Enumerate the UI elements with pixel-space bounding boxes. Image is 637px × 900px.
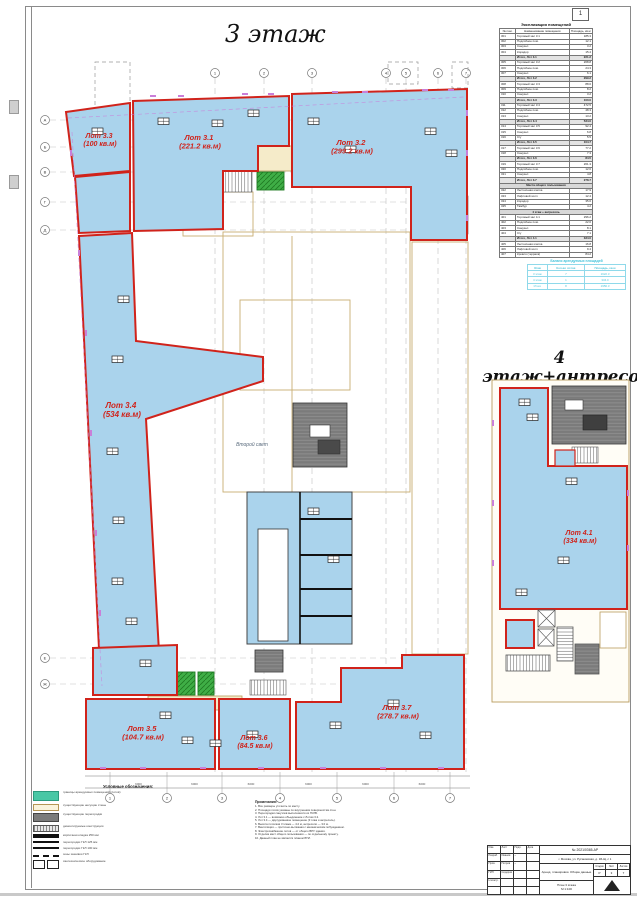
stage-label: Стадия <box>594 864 606 869</box>
lot-3-3-annex-region[interactable] <box>75 172 130 233</box>
title-block-grid-row: ГИПСидоров <box>488 871 539 879</box>
lot-4-1-annex-region[interactable] <box>506 620 534 648</box>
svg-text:6000: 6000 <box>419 782 426 786</box>
legend-swatch-bar1 <box>33 834 59 838</box>
explication-row: 407Кровля (терраса)84.2 <box>500 252 593 257</box>
legend-item: зоны зашивки ГКЛ <box>33 853 251 857</box>
title-block-grid-row <box>488 887 539 894</box>
legend-swatch-teal <box>33 791 59 801</box>
stage-value: Р <box>594 870 606 876</box>
legend-item-text: кирпичная кладка 250 мм <box>63 834 99 838</box>
area-balance-table: Баланс арендуемых площадей ЭтажКол-во ло… <box>527 259 626 290</box>
title-block-drawing-name: План 3 этажа М 1:100 <box>540 881 593 895</box>
lot-3-7-label: Лот 3.7 (278.7 кв.м) <box>377 703 419 721</box>
legend-item-text: зоны зашивки ГКЛ <box>63 853 89 857</box>
title-block-doc-title: Аренд. планировки. Общие данные <box>540 864 593 881</box>
title-block-grid-row: Разраб.Иванов~ <box>488 854 539 862</box>
legend-item: существующие перегородки <box>33 813 251 822</box>
legend-item: перегородки ГКЛ 125 мм <box>33 841 251 845</box>
legend-item-text: существующие перегородки <box>63 813 102 817</box>
sheets-label: Листов <box>618 864 630 869</box>
central-common-rooms <box>247 492 352 644</box>
legend-item-text: демонтируемые конструкции <box>63 825 103 829</box>
drawing-sheet: 1 3 этаж 4 этаж+антресоль <box>0 0 637 900</box>
lot-3-4-region[interactable] <box>79 233 263 690</box>
explication-table: Экспликация помещений № пом.Наименование… <box>499 22 593 258</box>
sheets-value: 7 <box>618 870 630 876</box>
legend-item: кирпичная кладка 250 мм <box>33 834 251 838</box>
legend-swatch-dash <box>33 853 59 857</box>
legend-item: границы арендуемых помещений (лотов) <box>33 791 251 801</box>
legend-item-text: границы арендуемых помещений (лотов) <box>63 791 121 795</box>
svg-text:Д: Д <box>44 228 47 233</box>
svg-text:А: А <box>44 118 47 123</box>
legend-item-text: сантехническое оборудование <box>63 860 106 864</box>
legend-swatch-wall <box>33 804 59 811</box>
legend-item: существующие несущие стены <box>33 804 251 811</box>
legend-swatch-gray <box>33 813 59 822</box>
plan4-small-room[interactable] <box>555 450 575 466</box>
note-line: 10. Данный план не является планом БТИ. <box>255 837 479 840</box>
title-block-grid-row: Н.контр. <box>488 879 539 887</box>
title-block-grid-row: Пров.Петров~ <box>488 862 539 870</box>
lot-3-2-label: Лот 3.2 (299.2 кв.м) <box>331 138 373 156</box>
title-block-address: г. Москва, ул. Русаковская, д. 1Б-Щ, с 1 <box>540 855 630 864</box>
area-balance-title: Баланс арендуемых площадей <box>527 259 626 263</box>
lot-3-5-upper-region[interactable] <box>93 645 177 695</box>
legend-swatch-bar2 <box>33 841 59 844</box>
sheet-label: Лист <box>606 864 618 869</box>
lot-3-2-region[interactable] <box>292 89 467 240</box>
svg-text:Е: Е <box>44 656 47 661</box>
legend: Условные обозначения: границы арендуемых… <box>33 784 251 871</box>
legend-item-text: существующие несущие стены <box>63 804 106 808</box>
legend-item: перегородки ГКЛ 100 мм <box>33 847 251 851</box>
drawing-scale: М 1:100 <box>561 887 572 891</box>
legend-title: Условные обозначения: <box>103 784 251 789</box>
lot-4-1-label: Лот 4.1 (334 кв.м) <box>563 530 597 545</box>
balance-row: Итого81956.3 <box>528 283 626 289</box>
lot-3-6-label: Лот 3.6 (84.5 кв.м) <box>237 735 273 750</box>
void-label: Второй свет <box>236 441 268 448</box>
sheet-value: 3 <box>606 870 618 876</box>
lot-3-4-label: Лот 3.4 (534 кв.м) <box>103 401 141 419</box>
svg-text:6000: 6000 <box>362 782 369 786</box>
legend-item: сантехническое оборудование <box>33 860 251 869</box>
title-block-doc-number: № 2021/0365-АР <box>540 846 630 855</box>
title-block-grid-row: Изм.ЛистПодп.Дата <box>488 846 539 854</box>
company-logo <box>594 877 630 894</box>
explication-title: Экспликация помещений <box>499 22 593 27</box>
legend-swatch-wc <box>33 860 59 869</box>
lot-3-1-label: Лот 3.1 (221.2 кв.м) <box>179 133 221 151</box>
svg-text:Б: Б <box>44 145 47 150</box>
title-block-signatures: Изм.ЛистПодп.ДатаРазраб.Иванов~Пров.Петр… <box>488 846 540 894</box>
lot-3-5-label: Лот 3.5 (104.7 кв.м) <box>122 724 164 742</box>
title-block: Изм.ЛистПодп.ДатаРазраб.Иванов~Пров.Петр… <box>487 845 631 895</box>
notes-block: Примечания: 1. Все размеры уточнять по м… <box>255 800 479 840</box>
svg-text:Ж: Ж <box>43 682 47 687</box>
legend-swatch-hatch <box>33 825 59 832</box>
svg-text:В: В <box>44 170 47 175</box>
svg-text:6000: 6000 <box>305 782 312 786</box>
legend-item-text: перегородки ГКЛ 100 мм <box>63 847 97 851</box>
legend-item: демонтируемые конструкции <box>33 825 251 832</box>
lot-3-3-label: Лот 3.3 (100 кв.м) <box>83 133 117 148</box>
legend-item-text: перегородки ГКЛ 125 мм <box>63 841 97 845</box>
legend-swatch-bar3 <box>33 847 59 849</box>
